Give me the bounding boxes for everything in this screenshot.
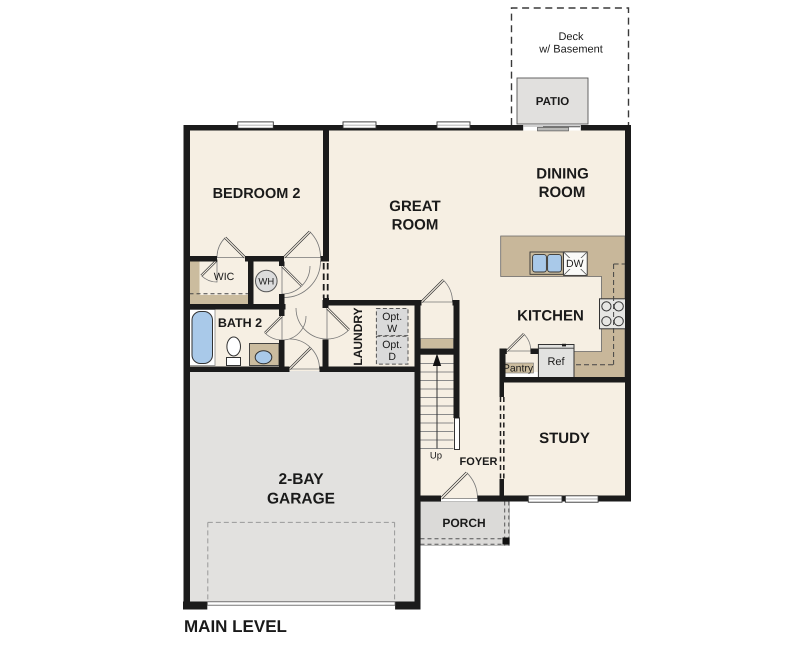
svg-text:Opt.: Opt. (382, 311, 402, 323)
svg-text:Pantry: Pantry (503, 363, 534, 375)
svg-text:Opt.: Opt. (382, 339, 402, 351)
svg-text:PATIO: PATIO (536, 96, 569, 108)
svg-text:BATH 2: BATH 2 (218, 316, 262, 330)
svg-text:WH: WH (258, 277, 274, 288)
svg-text:DW: DW (566, 258, 584, 270)
svg-text:GREAT: GREAT (389, 198, 440, 215)
svg-text:FOYER: FOYER (460, 456, 498, 468)
svg-text:DINING: DINING (536, 166, 589, 183)
svg-text:W: W (387, 323, 397, 335)
svg-text:Ref: Ref (547, 356, 565, 368)
svg-text:BEDROOM 2: BEDROOM 2 (213, 186, 301, 202)
svg-text:MAIN LEVEL: MAIN LEVEL (184, 617, 287, 636)
svg-text:GARAGE: GARAGE (267, 491, 335, 508)
svg-text:KITCHEN: KITCHEN (517, 308, 584, 325)
svg-text:ROOM: ROOM (539, 184, 586, 201)
svg-text:Up: Up (430, 451, 442, 462)
svg-text:Deck: Deck (558, 31, 584, 43)
svg-text:ROOM: ROOM (392, 217, 439, 234)
svg-text:D: D (388, 351, 396, 363)
svg-text:PORCH: PORCH (442, 516, 485, 530)
svg-text:2-BAY: 2-BAY (278, 471, 324, 488)
svg-text:WIC: WIC (214, 271, 235, 283)
svg-text:LAUNDRY: LAUNDRY (351, 307, 365, 365)
svg-text:w/ Basement: w/ Basement (538, 44, 603, 56)
svg-text:STUDY: STUDY (539, 430, 590, 447)
